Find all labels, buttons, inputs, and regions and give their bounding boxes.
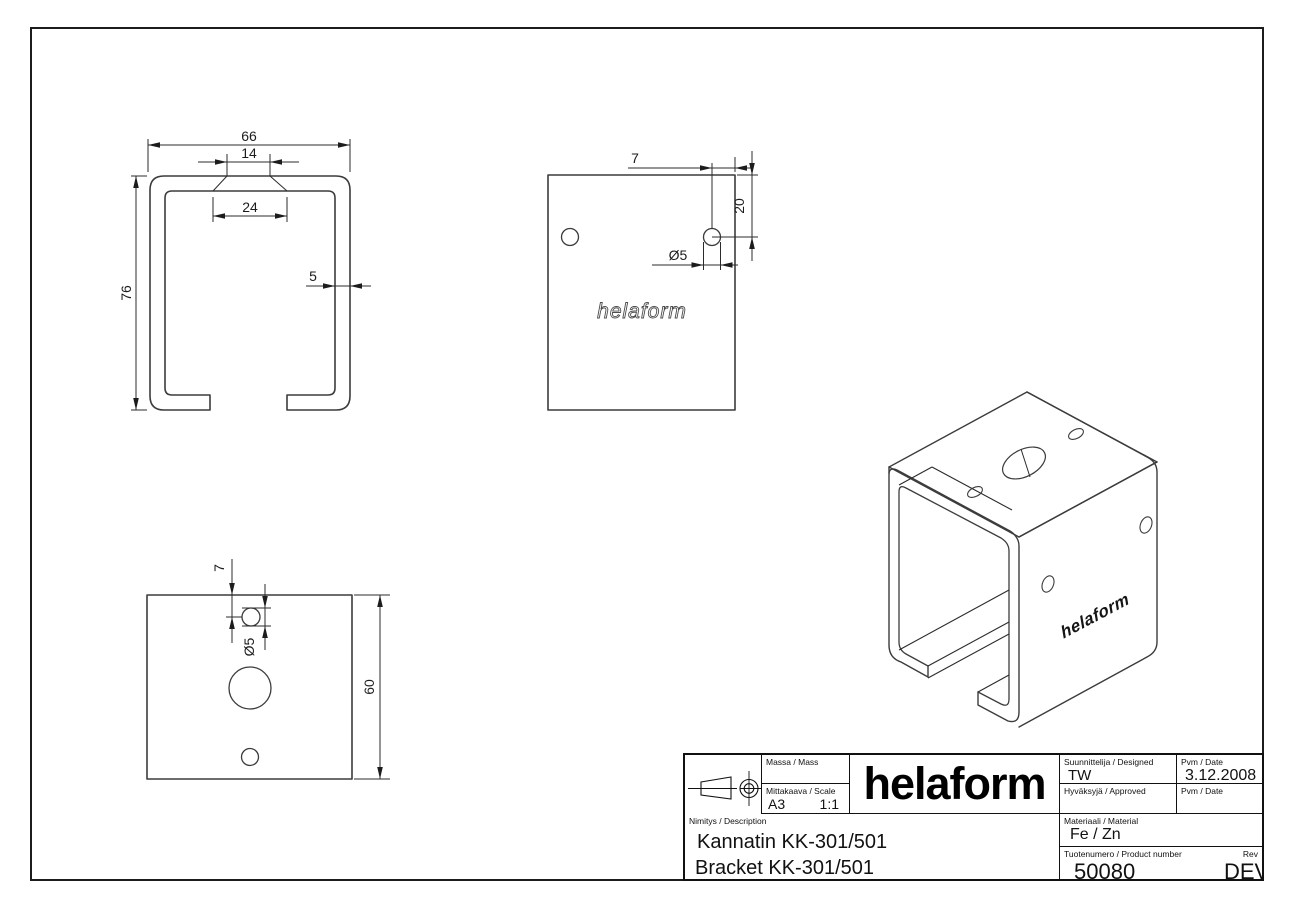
revision-value: DEV.003 — [1224, 859, 1262, 879]
rev-label: Rev — [1243, 849, 1258, 859]
arrowhead — [262, 626, 268, 638]
iso-top-front-right-edge — [1019, 462, 1157, 537]
section-view: 66 14 24 76 5 — [118, 128, 371, 410]
date2-label: Pvm / Date — [1177, 784, 1262, 796]
projection-symbol-cell — [685, 755, 762, 814]
iso-hole-chord — [1021, 449, 1030, 477]
sheet-size: A3 — [768, 796, 785, 812]
arrowhead — [275, 213, 287, 219]
arrowhead — [749, 237, 755, 249]
arrowhead — [700, 165, 712, 171]
arrowhead — [262, 596, 268, 608]
mass-cell: Massa / Mass — [762, 755, 850, 784]
dim-7-label: 7 — [631, 150, 639, 166]
dim-7-lines — [226, 559, 242, 643]
company-logo: helaform — [850, 755, 1059, 813]
iso-view: helaform — [889, 392, 1157, 727]
iso-side-hole-1 — [1040, 574, 1057, 594]
arrowhead — [377, 767, 383, 779]
iso-brand-text: helaform — [1058, 589, 1131, 643]
iso-top-face — [889, 392, 1157, 537]
arrowhead — [323, 283, 335, 289]
first-angle-projection-icon — [685, 755, 762, 813]
iso-right-face — [1019, 392, 1157, 727]
dim-5-label: 5 — [309, 268, 317, 284]
material-label: Materiaali / Material — [1060, 814, 1262, 826]
dim-76-label: 76 — [118, 285, 134, 301]
top-small-hole-upper — [242, 608, 260, 626]
description-line2: Bracket KK-301/501 — [685, 854, 1059, 879]
dim-20-label: 20 — [731, 198, 747, 214]
scale-label: Mittakaava / Scale — [762, 784, 849, 796]
iso-left-edge — [889, 467, 928, 677]
date-label: Pvm / Date — [1177, 755, 1262, 767]
top-small-hole-lower — [242, 749, 259, 766]
side-watermark: helaform — [597, 300, 687, 323]
scale-value: 1:1 — [820, 796, 839, 812]
arrowhead — [692, 262, 704, 268]
top-center-hole — [229, 667, 271, 709]
drawing-sheet: 66 14 24 76 5 hel — [0, 0, 1296, 913]
arrowhead — [350, 283, 362, 289]
product-cell: Tuotenumero / Product number Rev 50080 D… — [1060, 847, 1262, 879]
dim-66-label: 66 — [241, 128, 257, 144]
dim-7-label: 7 — [211, 564, 227, 572]
iso-top-center-hole — [997, 441, 1050, 486]
arrowhead — [133, 176, 139, 188]
iso-top-small-hole-1 — [1067, 426, 1085, 441]
approved-label: Hyväksyjä / Approved — [1060, 784, 1176, 796]
side-view: helaform 7 20 Ø5 — [548, 150, 758, 410]
arrowhead — [148, 142, 160, 148]
arrowhead — [338, 142, 350, 148]
description-cell: Nimitys / Description Kannatin KK-301/50… — [685, 814, 1060, 879]
material-value: Fe / Zn — [1060, 826, 1262, 844]
designed-cell: Suunnittelija / Designed TW — [1060, 755, 1177, 784]
dim-24-label: 24 — [242, 199, 258, 215]
iso-interior-lines — [899, 467, 1012, 692]
arrowhead — [229, 617, 235, 629]
arrowhead — [721, 262, 733, 268]
designed-value: TW — [1060, 767, 1176, 784]
product-label: Tuotenumero / Product number — [1060, 847, 1262, 859]
product-number: 50080 — [1074, 859, 1224, 879]
side-plate-outline — [548, 175, 735, 410]
title-block: Massa / Mass Mittakaava / Scale A3 1:1 h… — [683, 753, 1264, 881]
description-label: Nimitys / Description — [685, 814, 1059, 826]
dim-dia5-label: Ø5 — [669, 247, 688, 263]
date-designed-cell: Pvm / Date 3.12.2008 — [1177, 755, 1262, 784]
arrowhead — [377, 595, 383, 607]
arrowhead — [213, 213, 225, 219]
approved-cell: Hyväksyjä / Approved — [1060, 784, 1177, 814]
dim-dia5-label: Ø5 — [241, 637, 257, 656]
logo-cell: helaform — [850, 755, 1060, 814]
material-cell: Materiaali / Material Fe / Zn — [1060, 814, 1262, 847]
iso-channel-opening — [899, 487, 1009, 706]
side-hole-left — [562, 229, 579, 246]
description-line1: Kannatin KK-301/501 — [685, 826, 1059, 854]
arrowhead — [735, 165, 747, 171]
arrowhead — [749, 163, 755, 175]
arrowhead — [215, 159, 227, 165]
date-value: 3.12.2008 — [1177, 767, 1262, 784]
arrowhead — [270, 159, 282, 165]
iso-side-hole-2 — [1138, 515, 1155, 535]
arrowhead — [229, 583, 235, 595]
section-countersink-lines — [213, 176, 287, 191]
date-approved-cell: Pvm / Date — [1177, 784, 1262, 814]
designed-label: Suunnittelija / Designed — [1060, 755, 1176, 767]
scale-cell: Mittakaava / Scale A3 1:1 — [762, 784, 850, 814]
top-plate-outline — [147, 595, 352, 779]
arrowhead — [133, 398, 139, 410]
dim-60-label: 60 — [361, 679, 377, 695]
dim-14-label: 14 — [241, 145, 257, 161]
mass-label: Massa / Mass — [762, 755, 849, 767]
top-view: 7 Ø5 60 — [147, 559, 390, 779]
